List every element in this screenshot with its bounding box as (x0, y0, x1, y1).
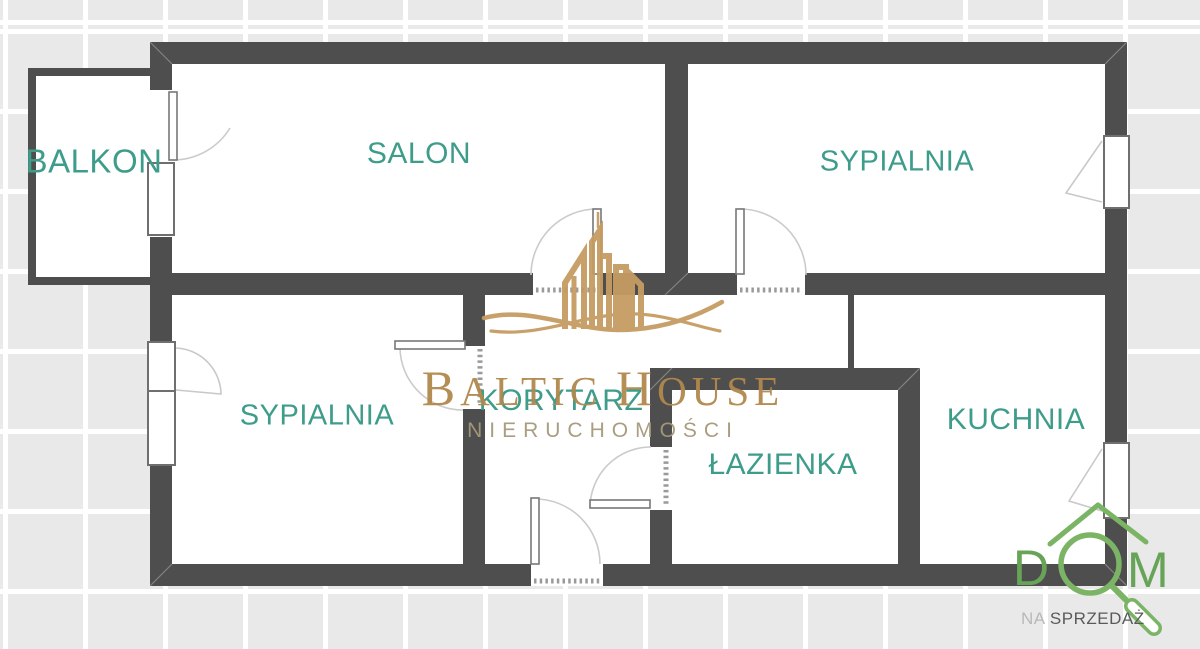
leaf-entrance-door (531, 498, 539, 564)
watermark-subtitle: NIERUCHOMOŚCI (467, 420, 739, 441)
leaf-salon-door (593, 209, 601, 274)
leaf-lazienka-door (590, 500, 650, 508)
room-label-balkon: BALKON (26, 145, 163, 178)
window-sypialnia-top (1104, 136, 1129, 208)
wall-balcony-bottom (28, 277, 152, 285)
watermark-title-part: OUSE (657, 368, 784, 414)
opening-lazienka-door (650, 447, 672, 510)
agency-tagline: NA SPRZEDAŻ (1021, 610, 1145, 627)
wall-korytarz-kuchnia-thin (848, 295, 854, 368)
watermark-title-initial: H (616, 360, 657, 416)
leaf-sypialnia-door (736, 209, 744, 274)
room-label-sypialnia-gorna: SYPIALNIA (820, 148, 974, 177)
room-label-kuchnia: KUCHNIA (947, 405, 1086, 435)
window-kuchnia (1104, 443, 1129, 518)
watermark-title-part: ALTIC (460, 368, 602, 414)
floor-fill (28, 42, 1127, 586)
dom-letter-m: M (1127, 545, 1169, 595)
watermark-title-initial: B (422, 360, 460, 416)
watermark-title: BALTICHOUSE (422, 363, 784, 413)
room-label-salon: SALON (367, 139, 471, 169)
wall-outer-bottom (150, 564, 1127, 586)
wall-middle-horizontal (172, 273, 1105, 295)
room-label-sypialnia-dolna: SYPIALNIA (240, 402, 394, 431)
leaf-sypialnia-left-door (395, 341, 465, 349)
leaf-balcony-door (169, 92, 177, 160)
room-label-lazienka: ŁAZIENKA (708, 450, 857, 480)
dom-letter-d: D (1013, 543, 1049, 593)
floorplan-screenshot: BALKON SALON SYPIALNIA SYPIALNIA KORYTAR… (0, 0, 1200, 649)
wall-lazienka-right (898, 390, 920, 564)
tagline-na: NA (1021, 609, 1045, 628)
wall-balcony-top (28, 68, 152, 76)
wall-outer-top (150, 42, 1127, 64)
wall-salon-sypialnia (665, 64, 688, 273)
window-sypialnia-left (148, 342, 175, 465)
tagline-sprzedaz: SPRZEDAŻ (1050, 609, 1145, 628)
